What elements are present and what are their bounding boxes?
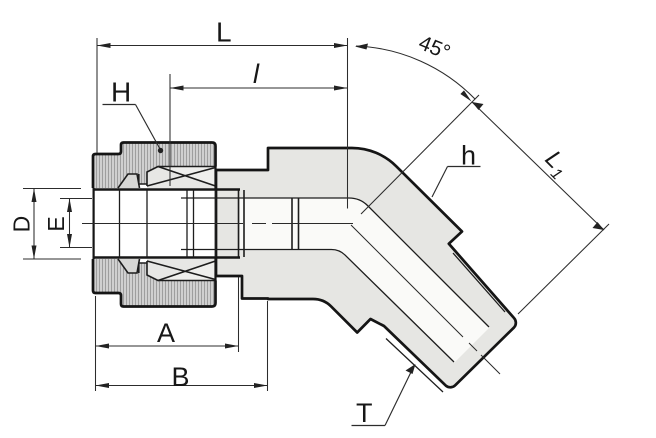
svg-text:A: A	[157, 318, 175, 348]
svg-text:B: B	[172, 362, 190, 392]
svg-text:l: l	[253, 59, 260, 89]
svg-text:T: T	[356, 398, 373, 428]
svg-text:D: D	[9, 216, 35, 233]
svg-text:H: H	[111, 77, 131, 108]
svg-text:L: L	[216, 17, 232, 48]
svg-text:E: E	[43, 216, 69, 231]
